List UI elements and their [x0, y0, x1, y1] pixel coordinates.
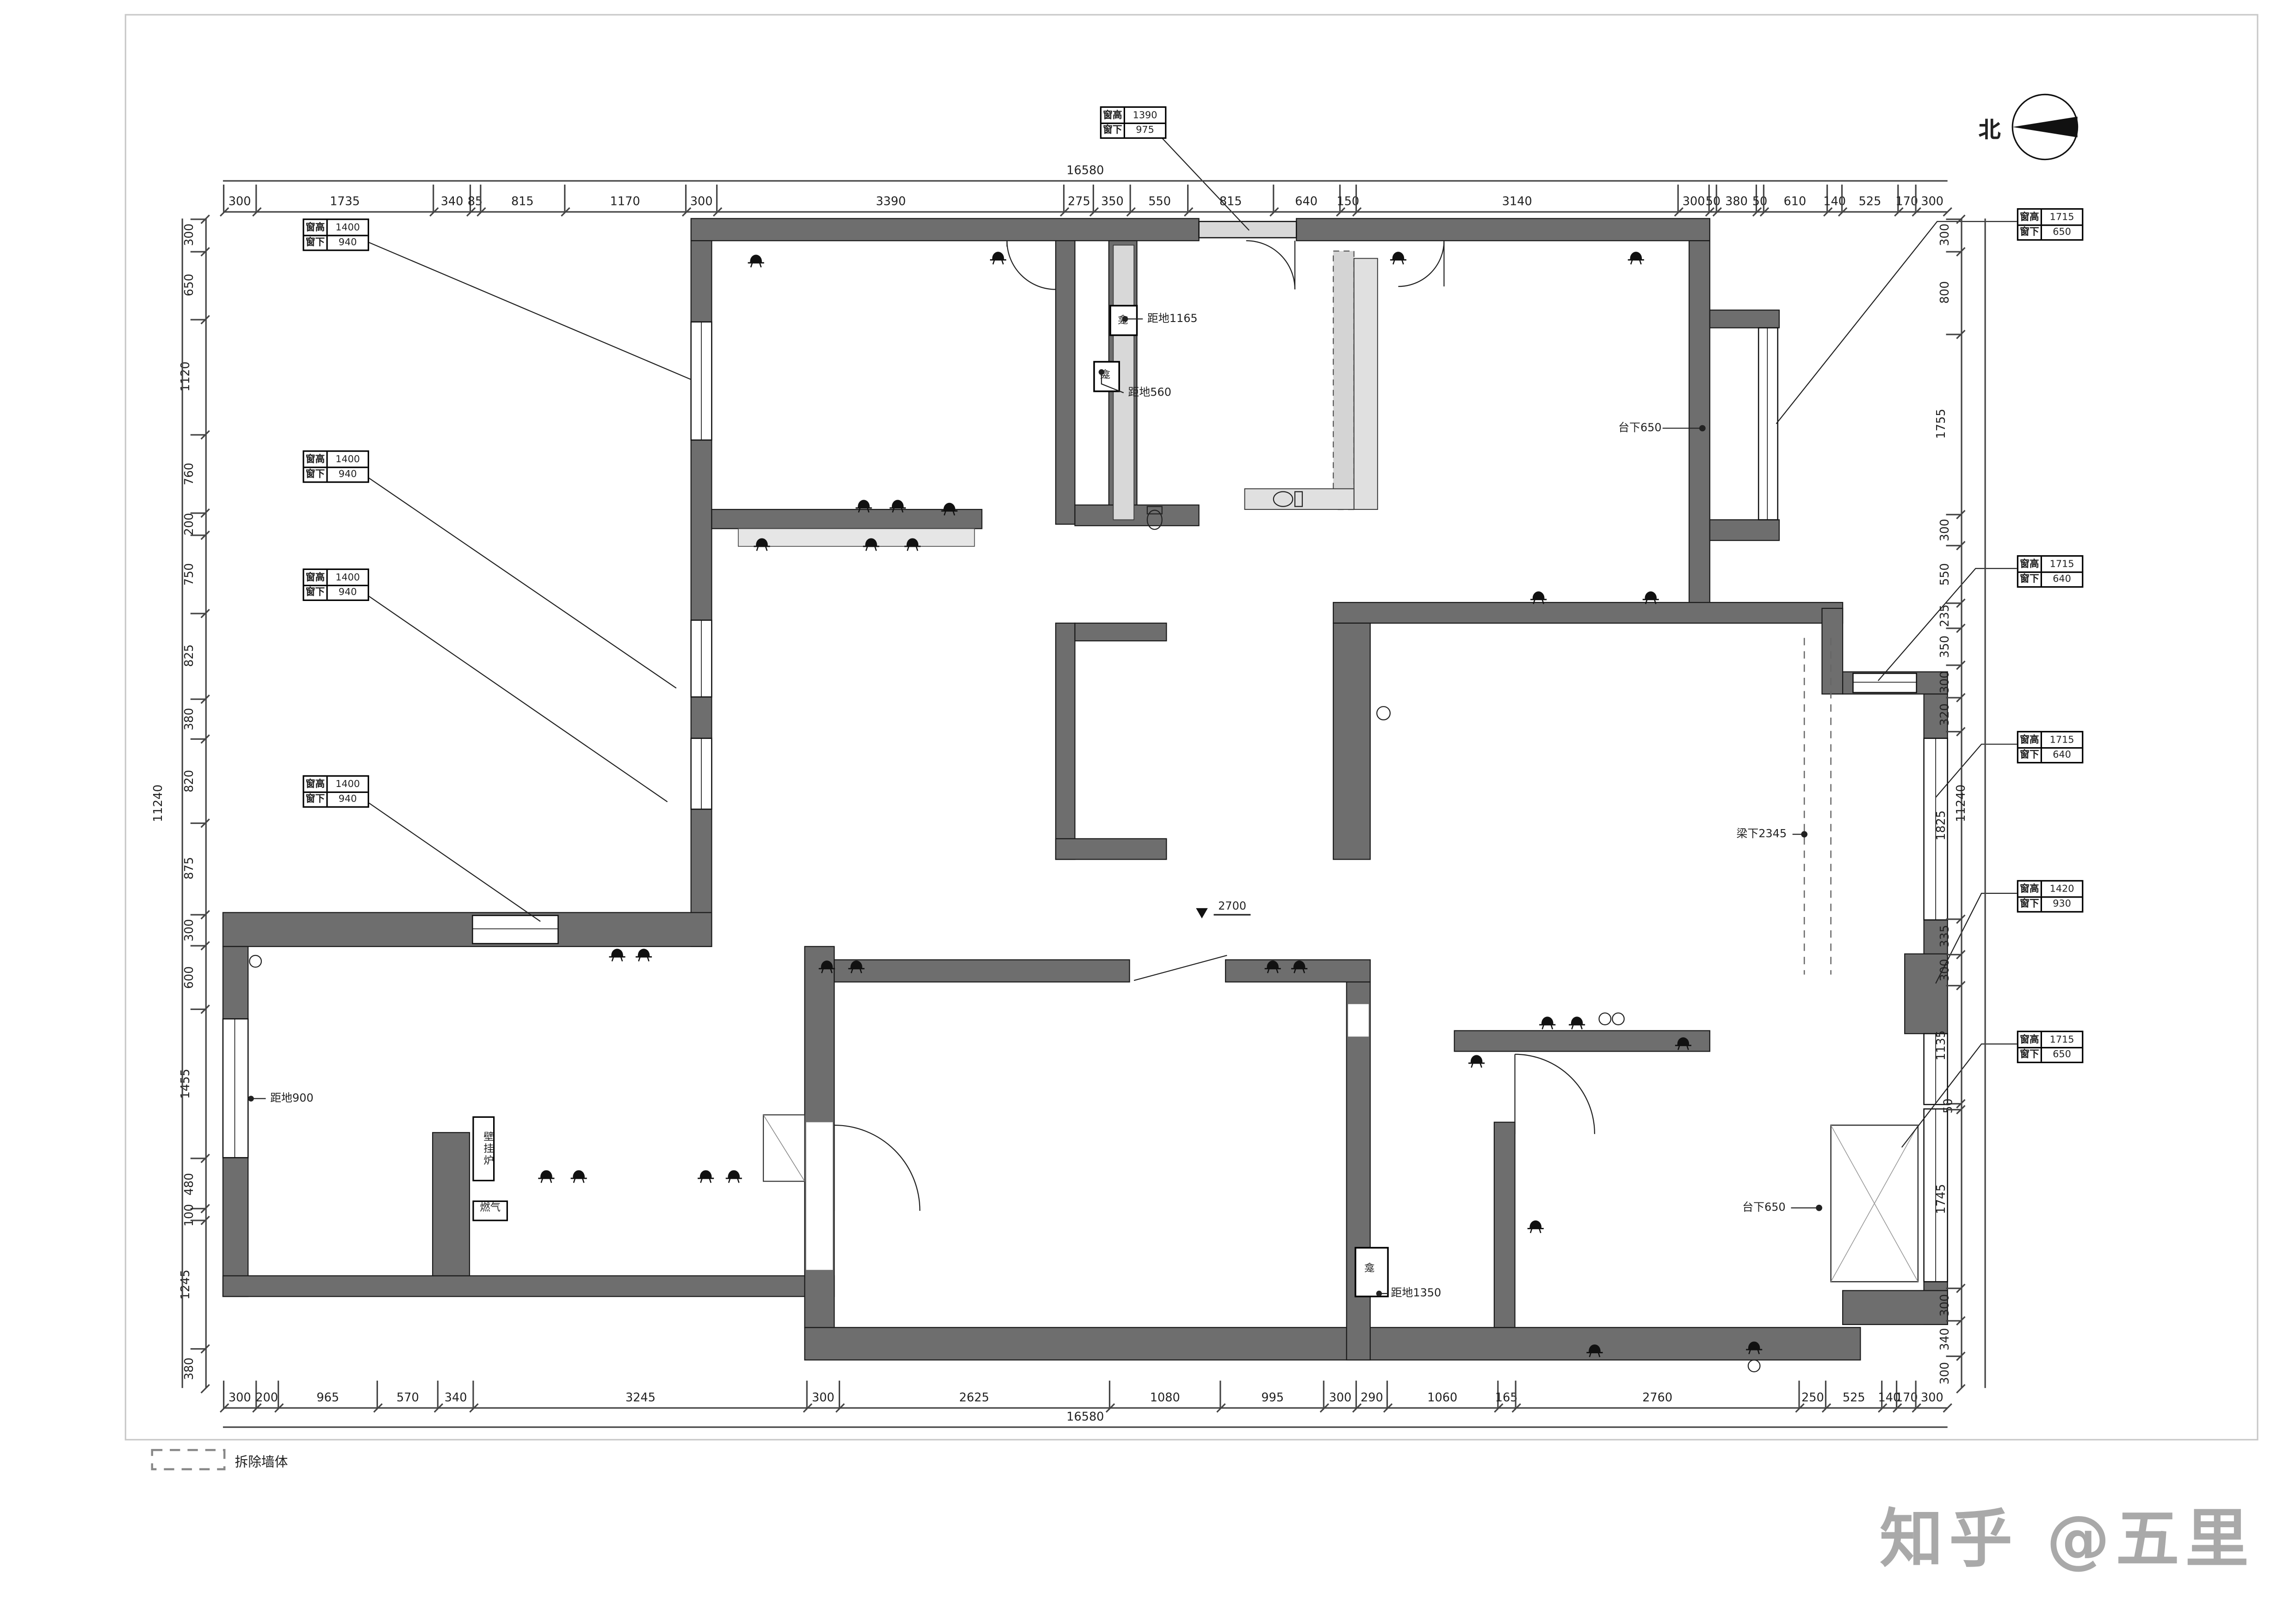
dimension-label: 525	[1859, 196, 1881, 208]
dimension-label: 300	[1939, 959, 1951, 982]
dimension-segment: 100	[191, 1208, 205, 1220]
dimension-label: 200	[184, 513, 196, 536]
legend-demolish-symbol	[152, 1450, 224, 1469]
annotation-under-counter-top: 台下650	[1618, 422, 1662, 434]
tag-key: 窗下	[2018, 572, 2042, 586]
fixtures-group	[1147, 492, 1760, 1372]
window-tag-left-2: 窗高1400 窗下940	[303, 450, 369, 483]
dimension-segment: 50	[1709, 185, 1715, 211]
light-partitions-group	[738, 222, 1918, 1282]
window-tag-left-4: 窗高1400 窗下940	[303, 775, 369, 808]
dimension-segment: 1120	[191, 318, 205, 434]
dimension-segment: 1745	[1946, 1109, 1961, 1288]
dimension-segment: 235	[1946, 603, 1961, 628]
dimension-label: 300	[690, 196, 713, 208]
tag-value: 1715	[2042, 732, 2082, 746]
dimension-segment: 300	[191, 218, 205, 250]
dimension-segment: 550	[1130, 185, 1188, 211]
dimension-segment: 50	[1756, 185, 1762, 211]
dimension-label: 815	[1219, 196, 1242, 208]
dimension-label: 380	[1725, 196, 1748, 208]
window-tag-right-2: 窗高1715 窗下640	[2017, 555, 2084, 588]
watermark: 知乎 @五里	[1880, 1488, 2255, 1580]
dimension-segment: 380	[1715, 185, 1756, 211]
dimension-label: 550	[1939, 564, 1951, 586]
dimension-segment: 335	[1946, 918, 1961, 954]
floorplan-sheet: 3001735340858151170300339027535055081564…	[0, 0, 2296, 1623]
dimension-label: 760	[184, 463, 196, 485]
dimension-segment: 1735	[255, 185, 433, 211]
dimension-label: 335	[1939, 925, 1951, 948]
door-swings	[249, 241, 1595, 1211]
tag-key: 窗高	[2018, 732, 2042, 746]
dimension-label: 170	[1895, 196, 1918, 208]
legend-label: 拆除墙体	[235, 1451, 288, 1470]
dimension-label: 1170	[610, 196, 640, 208]
top-dimension-chain: 3001735340858151170300339027535055081564…	[223, 185, 1948, 213]
dimension-segment: 640	[1272, 185, 1339, 211]
dimension-segment: 1825	[1946, 731, 1961, 918]
dimension-segment: 300	[1946, 218, 1961, 250]
window-tag-left-3: 窗高1400 窗下940	[303, 569, 369, 601]
left-dimension-total: 11240	[167, 218, 183, 1388]
dimension-label: 300	[1939, 1362, 1951, 1384]
top-dimension-total: 16580	[223, 156, 1948, 181]
dimension-label: 380	[184, 707, 196, 730]
dimension-segment: 800	[1946, 250, 1961, 333]
tag-key: 窗下	[304, 467, 328, 481]
annotation-height-1165: 距地1165	[1147, 313, 1198, 324]
dim-total-label: 16580	[1066, 1412, 1104, 1424]
walls-group	[223, 218, 1948, 1360]
tag-value: 650	[2042, 225, 2082, 239]
dimension-label: 1735	[330, 196, 360, 208]
bottom-dimension-total: 16580	[223, 1403, 1948, 1428]
dimension-segment: 140	[1826, 185, 1842, 211]
annotation-height-900: 距地900	[270, 1093, 314, 1104]
dimension-label: 300	[1939, 519, 1951, 541]
dimension-segment: 275	[1064, 185, 1093, 211]
tag-value: 1715	[2042, 210, 2082, 223]
tag-key: 窗下	[1102, 123, 1125, 137]
dim-total-label: 11240	[153, 785, 165, 822]
window-tag-left-1: 窗高1400 窗下940	[303, 218, 369, 251]
annotation-wall-boiler: 壁挂炉	[472, 1116, 495, 1181]
dimension-label: 300	[1683, 196, 1705, 208]
dimension-label: 300	[184, 224, 196, 247]
dimension-segment: 150	[1339, 185, 1355, 211]
dimension-segment: 525	[1842, 185, 1897, 211]
dimension-label: 3140	[1502, 196, 1532, 208]
tag-value: 1390	[1125, 108, 1165, 122]
tag-key: 窗下	[304, 792, 328, 806]
dimension-label: 1825	[1936, 810, 1948, 840]
dimension-segment: 300	[1946, 954, 1961, 985]
dimension-label: 1745	[1936, 1184, 1948, 1214]
dimension-label: 340	[441, 196, 464, 208]
annotation-height-1350: 距地1350	[1391, 1288, 1441, 1299]
dimension-label: 820	[184, 770, 196, 793]
tag-value: 640	[2042, 572, 2082, 586]
tag-value: 650	[2042, 1047, 2082, 1061]
tag-key: 窗高	[2018, 881, 2042, 895]
dimension-segment: 3140	[1355, 185, 1677, 211]
dimension-segment: 300	[1916, 185, 1948, 211]
dimension-segment: 1455	[191, 1008, 205, 1158]
dimension-label: 300	[229, 196, 251, 208]
tag-value: 1715	[2042, 1032, 2082, 1046]
dimension-segment: 815	[479, 185, 564, 211]
annotation-under-counter-bottom: 台下650	[1742, 1202, 1786, 1213]
dimension-segment: 875	[191, 823, 205, 914]
level-marker-icon	[1196, 908, 1208, 918]
dimension-segment: 600	[191, 946, 205, 1008]
dimension-label: 300	[184, 919, 196, 942]
dimension-label: 750	[184, 563, 196, 585]
dimension-segment: 825	[191, 612, 205, 698]
tag-value: 930	[2042, 897, 2082, 911]
dimension-label: 300	[1939, 1294, 1951, 1316]
dimension-label: 380	[184, 1357, 196, 1380]
dimension-label: 300	[1921, 196, 1943, 208]
dimension-label: 3390	[876, 196, 906, 208]
wall-openings	[806, 1004, 1369, 1270]
dimension-label: 815	[511, 196, 534, 208]
dim-total-label: 11240	[1956, 785, 1968, 822]
tag-value: 1715	[2042, 557, 2082, 570]
tag-key: 窗高	[304, 452, 328, 466]
level-annotation: 2700	[1213, 899, 1250, 916]
dimension-segment: 300	[1946, 665, 1961, 697]
dimension-label: 300	[1939, 224, 1951, 247]
tag-value: 1400	[328, 452, 368, 466]
north-arrow-icon	[2012, 94, 2077, 159]
dimension-segment: 380	[191, 698, 205, 738]
tag-key: 窗高	[2018, 557, 2042, 570]
niche-label: 龛	[1100, 371, 1110, 381]
north-label: 北	[1979, 114, 2001, 145]
tag-value: 940	[328, 792, 368, 806]
tag-key: 窗高	[304, 220, 328, 234]
dimension-label: 1755	[1936, 409, 1948, 439]
dimension-segment: 1170	[564, 185, 685, 211]
dimension-segment: 300	[223, 185, 255, 211]
tag-key: 窗下	[2018, 225, 2042, 239]
dimension-segment: 340	[1946, 1320, 1961, 1356]
dimension-label: 275	[1068, 196, 1090, 208]
tag-value: 940	[328, 585, 368, 599]
dimension-segment: 480	[191, 1158, 205, 1208]
niche-label: 龛	[1118, 316, 1128, 326]
dimension-segment: 1755	[1946, 334, 1961, 514]
dimension-label: 350	[1939, 636, 1951, 659]
window-tag-right-5: 窗高1715 窗下650	[2017, 1031, 2084, 1063]
dimension-segment: 300	[1677, 185, 1709, 211]
dimension-label: 550	[1148, 196, 1171, 208]
tag-value: 1400	[328, 570, 368, 584]
tag-key: 窗下	[304, 585, 328, 599]
tag-key: 窗下	[2018, 1047, 2042, 1061]
dimension-label: 875	[184, 858, 196, 880]
dimension-label: 600	[184, 966, 196, 989]
dimension-label: 320	[1939, 704, 1951, 726]
dimension-label: 610	[1784, 196, 1807, 208]
tag-key: 窗高	[2018, 210, 2042, 223]
dimension-segment: 340	[433, 185, 469, 211]
dimension-segment: 760	[191, 434, 205, 512]
dim-total-label: 16580	[1066, 165, 1104, 177]
tag-key: 窗下	[304, 235, 328, 249]
dimension-segment: 650	[191, 251, 205, 318]
tag-value: 1420	[2042, 881, 2082, 895]
tag-value: 640	[2042, 748, 2082, 762]
dimension-label: 800	[1939, 281, 1951, 304]
annotation-under-beam: 梁下2345	[1736, 828, 1787, 839]
dimension-segment: 300	[1946, 513, 1961, 545]
dimension-label: 300	[1939, 670, 1951, 693]
dimension-segment: 300	[1946, 1288, 1961, 1320]
tag-value: 975	[1125, 123, 1165, 137]
dimension-segment: 1135	[1946, 985, 1961, 1103]
dimension-label: 1135	[1936, 1030, 1948, 1060]
dimension-segment: 550	[1946, 545, 1961, 602]
sockets-group	[538, 252, 1762, 1357]
tag-key: 窗高	[304, 777, 328, 791]
dimension-segment: 350	[1093, 185, 1130, 211]
tag-key: 窗下	[2018, 748, 2042, 762]
niche-label: 龛	[1364, 1264, 1374, 1274]
tag-key: 窗高	[2018, 1032, 2042, 1046]
tag-value: 940	[328, 467, 368, 481]
annotation-height-560: 距地560	[1128, 387, 1171, 398]
dimension-segment: 815	[1188, 185, 1272, 211]
dimension-segment: 85	[470, 185, 480, 211]
tag-value: 1400	[328, 777, 368, 791]
tag-key: 窗下	[2018, 897, 2042, 911]
dimension-segment: 1245	[191, 1220, 205, 1348]
dimension-segment: 610	[1763, 185, 1826, 211]
window-tag-top: 窗高1390 窗下975	[1100, 106, 1167, 139]
dimension-segment: 3390	[717, 185, 1064, 211]
dimension-label: 650	[184, 274, 196, 297]
annotation-gas: 燃气	[472, 1201, 508, 1221]
dimension-segment: 300	[191, 913, 205, 945]
dimension-segment: 320	[1946, 697, 1961, 731]
tag-key: 窗高	[1102, 108, 1125, 122]
dimension-label: 340	[1939, 1327, 1951, 1350]
dimension-label: 825	[184, 644, 196, 667]
right-dimension-total: 11240	[1970, 218, 1986, 1388]
dimension-segment: 300	[1946, 1356, 1961, 1388]
dimension-segment: 820	[191, 738, 205, 823]
tag-key: 窗高	[304, 570, 328, 584]
tag-value: 1400	[328, 220, 368, 234]
dimension-label: 350	[1101, 196, 1124, 208]
dimension-segment: 200	[191, 513, 205, 534]
window-tag-right-3: 窗高1715 窗下640	[2017, 731, 2084, 763]
dimension-label: 235	[1939, 605, 1951, 627]
window-tag-right-1: 窗高1715 窗下650	[2017, 208, 2084, 241]
dimension-segment: 300	[685, 185, 717, 211]
tag-value: 940	[328, 235, 368, 249]
dimension-segment: 380	[191, 1348, 205, 1388]
dimension-segment: 50	[1946, 1103, 1961, 1109]
dimension-segment: 750	[191, 534, 205, 612]
dimension-segment: 350	[1946, 628, 1961, 665]
dimension-label: 480	[184, 1172, 196, 1195]
dimension-segment: 170	[1897, 185, 1916, 211]
dimension-label: 640	[1295, 196, 1318, 208]
window-tag-right-4: 窗高1420 窗下930	[2017, 880, 2084, 912]
left-dimension-chain: 3006501120760200750825380820875300600145…	[191, 218, 207, 1388]
